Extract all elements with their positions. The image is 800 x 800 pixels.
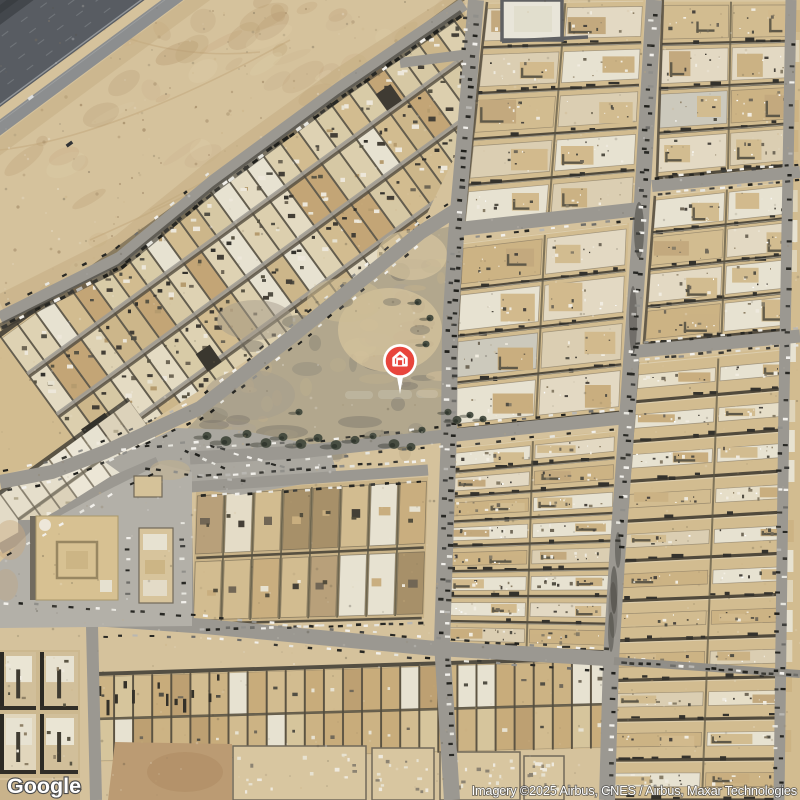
svg-text:Imagery ©2025 Airbus, CNES / A: Imagery ©2025 Airbus, CNES / Airbus, Max… (472, 783, 797, 798)
svg-text:Google: Google (7, 774, 81, 798)
